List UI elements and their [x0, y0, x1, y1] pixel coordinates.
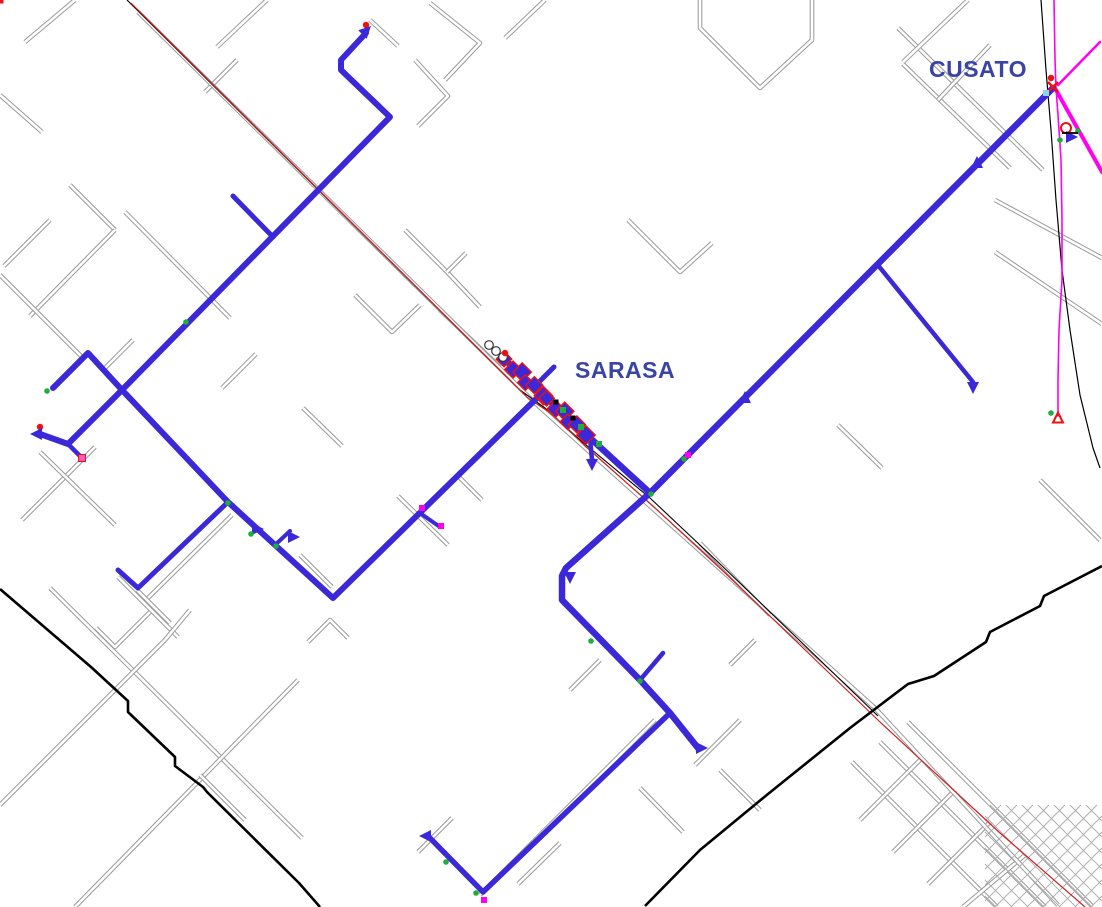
map-viewport[interactable]: CUSATO SARASA — [0, 0, 1102, 907]
map-canvas[interactable]: CUSATO SARASA — [0, 0, 1102, 907]
label-cusato: CUSATO — [929, 56, 1027, 82]
node-markers-layer — [0, 0, 1081, 903]
label-sarasa: SARASA — [575, 357, 675, 383]
street-grid-layer — [0, 0, 1102, 907]
magenta-lines-layer — [1054, 0, 1102, 416]
